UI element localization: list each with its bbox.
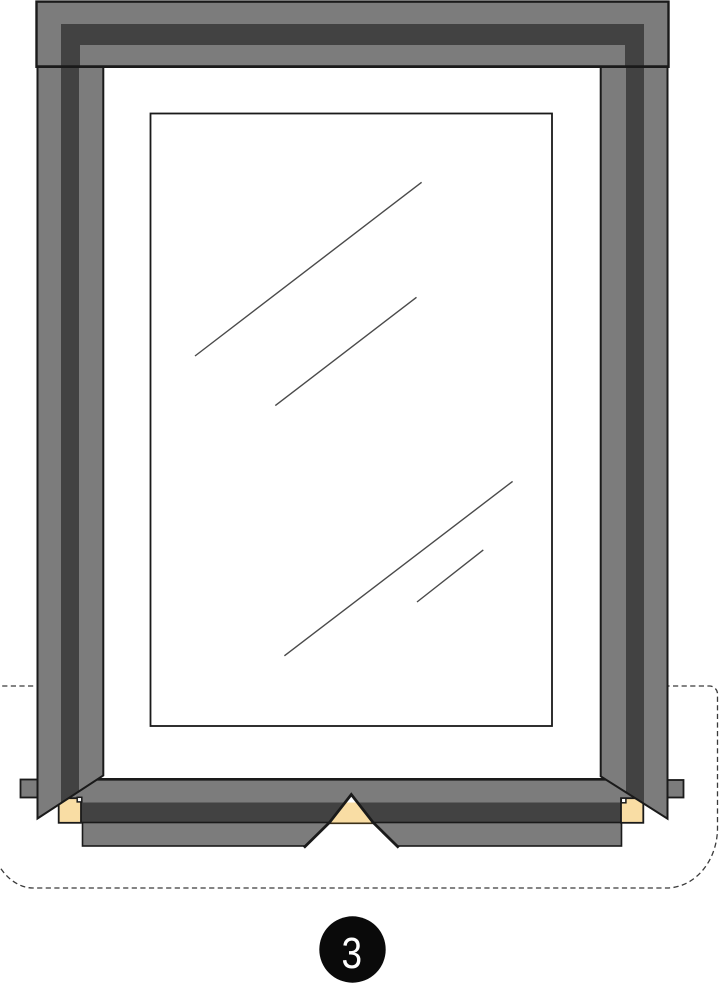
svg-text:3: 3 [342,928,363,978]
